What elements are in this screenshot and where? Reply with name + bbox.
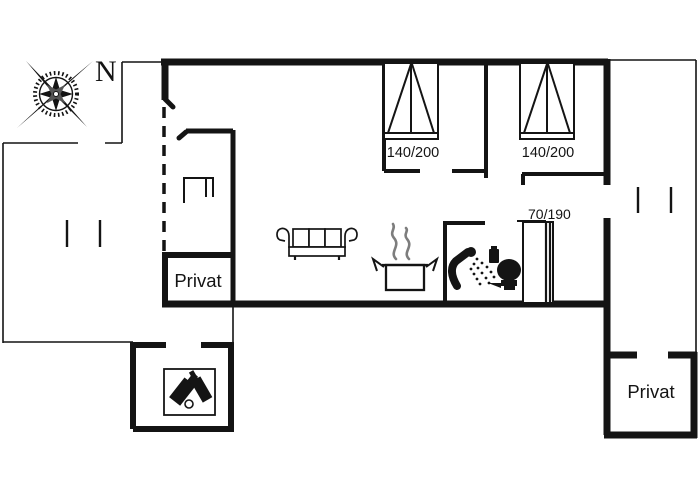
bed-size-label-2: 140/200	[522, 145, 574, 161]
bed-double-1	[384, 63, 438, 139]
bed-single	[517, 221, 553, 303]
opening-marks	[67, 187, 671, 247]
bottles-icon	[164, 369, 215, 415]
sofa-icon	[277, 228, 357, 260]
privat-label-right: Privat	[627, 381, 674, 402]
floor-plan: N 140/200 140/200 70/190 Privat Privat	[0, 0, 700, 500]
bathroom-walls	[443, 221, 485, 302]
bed-double-2	[520, 63, 574, 139]
compass-rose-icon	[17, 61, 93, 128]
terrace-outline-right	[607, 60, 696, 352]
bed-size-label-1: 140/200	[387, 145, 439, 161]
closet-symbol	[184, 178, 213, 203]
door-marks	[165, 99, 186, 138]
floor-plan-drawing: N 140/200 140/200 70/190 Privat Privat	[0, 0, 700, 500]
shower-icon	[452, 247, 495, 286]
terrace-outline-left	[3, 62, 162, 343]
steaming-pot-icon	[373, 224, 437, 290]
pot-body	[373, 259, 437, 290]
bed-size-label-3: 70/190	[528, 206, 571, 222]
privat-label-left: Privat	[174, 270, 221, 291]
toilet-icon	[488, 246, 521, 290]
north-label: N	[95, 55, 117, 88]
steam-lines	[392, 224, 409, 259]
